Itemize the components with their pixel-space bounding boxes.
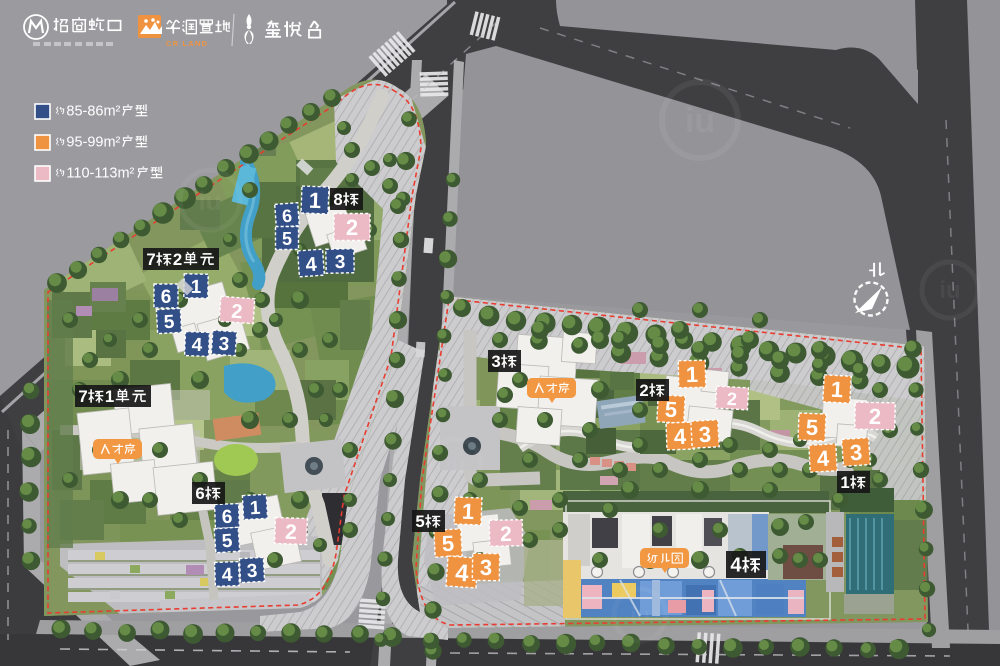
svg-text:iu: iu [685,102,715,140]
svg-text:iu: iu [445,453,465,478]
svg-text:iu: iu [198,186,221,216]
svg-text:iu: iu [630,603,650,628]
svg-text:iu: iu [939,277,960,304]
